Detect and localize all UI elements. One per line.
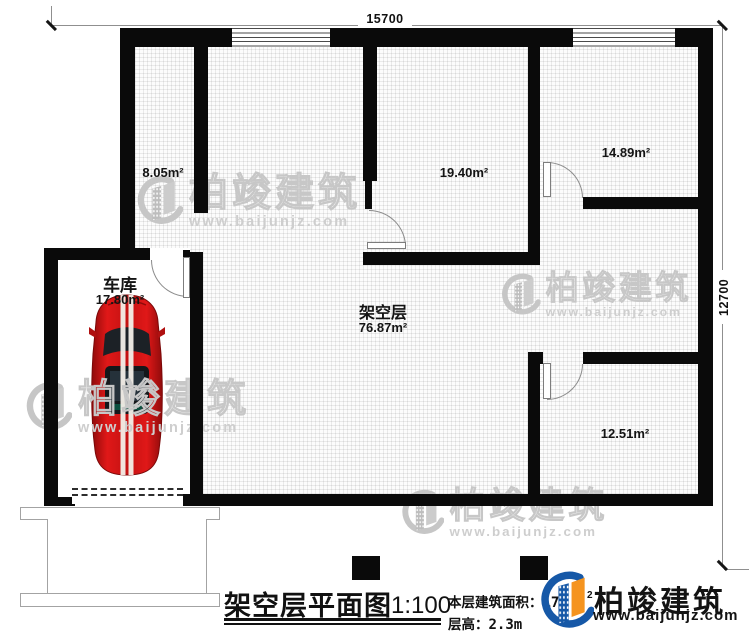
wall-bedroom-top-bottom	[583, 197, 698, 209]
wall-mid-vertical	[528, 28, 540, 265]
room-label-stilt-area: 76.87m²	[333, 320, 433, 335]
room-label-bedroom-bottom: 12.51m²	[575, 426, 675, 441]
room-label-garage-area: 17.80m²	[75, 292, 165, 307]
watermark-url: www.baijunjz.com	[450, 525, 608, 540]
door-panel-hall-room	[367, 242, 406, 249]
room-label-bedroom-top: 14.89m²	[576, 145, 676, 160]
plan-scale: 1:100	[391, 592, 451, 620]
garage-wall-right	[190, 252, 203, 506]
room-label-stair: 8.05m²	[128, 165, 198, 180]
wall-bedroom-bottom-top-b	[583, 352, 698, 364]
garage-roller-door-line	[72, 494, 183, 496]
dimension-label-height: 12700	[713, 270, 735, 324]
door-panel-bedroom-top	[543, 162, 551, 197]
garage-roller-door-line	[72, 488, 183, 490]
door-panel-garage	[183, 257, 190, 298]
wall-left	[120, 28, 135, 248]
wall-hall-door-jamb	[365, 181, 372, 209]
wall-hall-room-left	[363, 47, 377, 181]
garage-wall-bottom-corner	[44, 497, 75, 506]
garage-wall-left	[44, 248, 58, 506]
driveway	[47, 519, 207, 594]
floor-height-value: 2.3m	[489, 617, 523, 633]
floor-height-label: 层高：	[448, 617, 489, 632]
driveway-bottom-apron	[20, 593, 220, 607]
floor-plan-canvas: 柏竣建筑 www.baijunjz.com 柏竣建筑 www.baijunjz.…	[0, 0, 750, 640]
wall-bedroom-bottom-left	[528, 352, 540, 494]
dimension-label-width: 15700	[358, 12, 412, 26]
column-marker	[352, 556, 380, 580]
wall-bottom	[183, 494, 713, 506]
window-symbol	[573, 28, 675, 47]
brand-logo-icon	[536, 567, 594, 637]
garage-wall-top	[44, 248, 150, 260]
brand-website: www.baijunjz.com	[593, 607, 738, 624]
building-area-label: 本层建筑面积：	[448, 595, 543, 610]
floor-height-stat: 层高：2.3m	[448, 613, 522, 633]
door-panel-bedroom-bottom	[543, 363, 551, 399]
room-label-hall: 19.40m²	[414, 165, 514, 180]
car-top-view-image	[88, 292, 166, 478]
wall-stair-room-right	[194, 47, 208, 213]
window-symbol	[232, 28, 330, 47]
title-underline	[224, 623, 441, 625]
wall-hall-room-bottom	[363, 252, 540, 265]
wall-right	[698, 28, 713, 506]
